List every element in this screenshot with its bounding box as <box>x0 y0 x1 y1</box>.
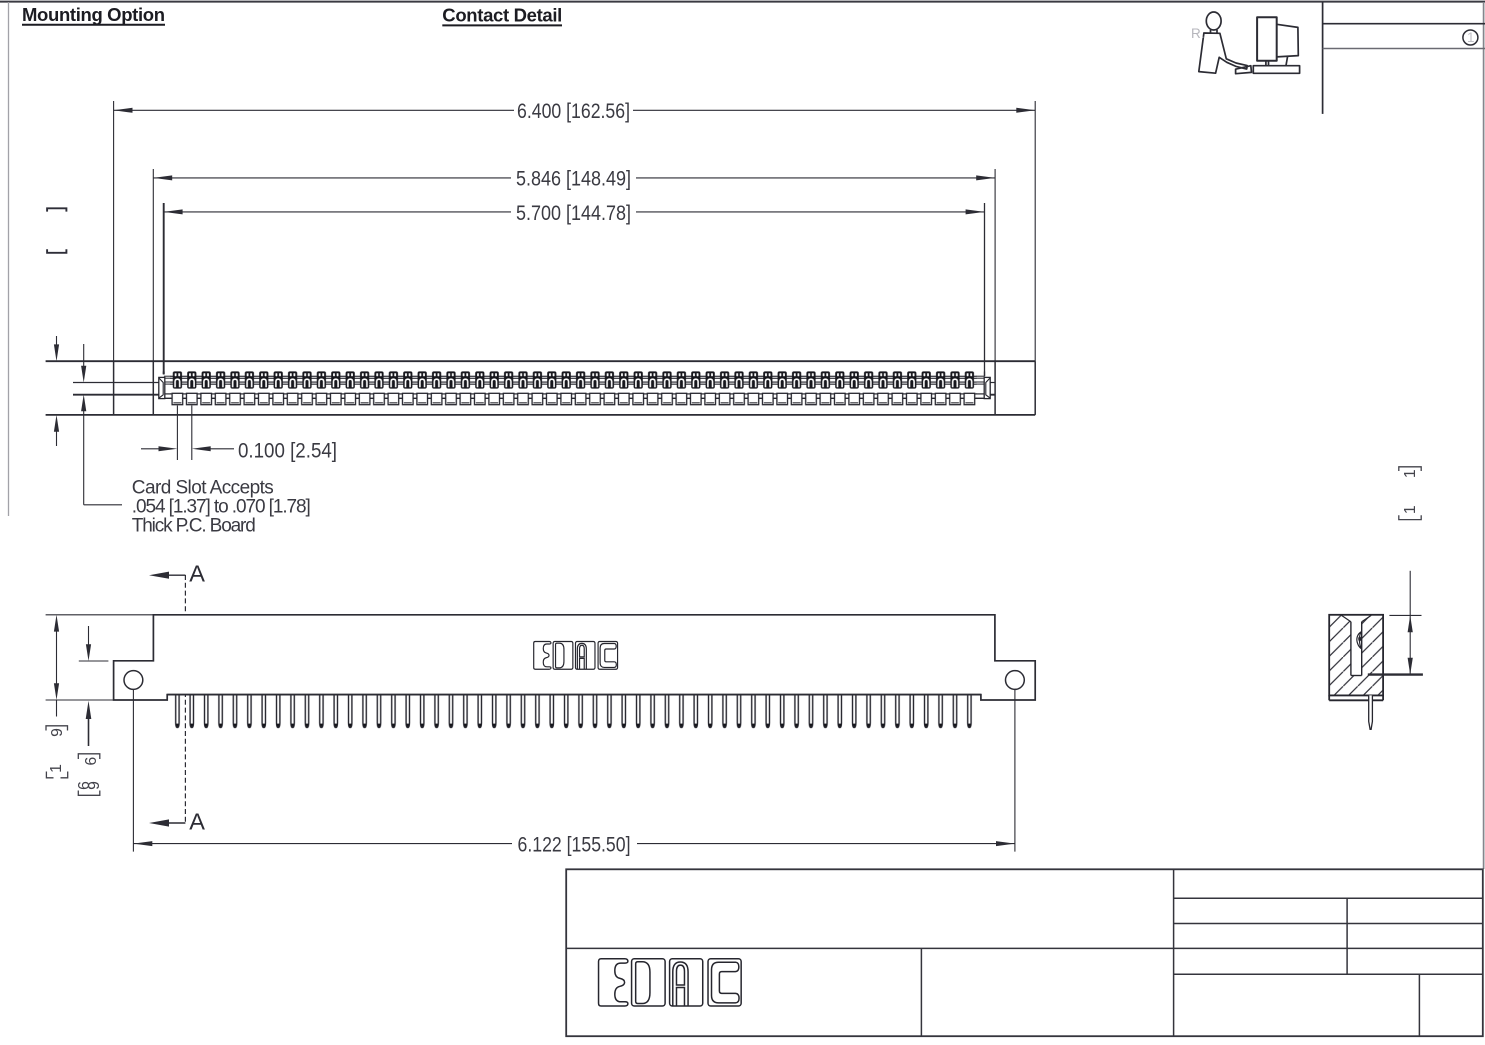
svg-text:Card Slot Accepts: Card Slot Accepts <box>132 478 274 499</box>
svg-text:9: 9 <box>49 728 66 737</box>
svg-text:6: 6 <box>83 757 100 766</box>
svg-text:0.100 [2.54]: 0.100 [2.54] <box>238 440 337 463</box>
svg-text:6.400 [162.56]: 6.400 [162.56] <box>517 100 630 123</box>
svg-text:Contact Detail: Contact Detail <box>442 4 562 25</box>
svg-text:1: 1 <box>48 764 65 773</box>
svg-text:A: A <box>189 561 205 587</box>
svg-text:Thick P.C. Board: Thick P.C. Board <box>132 515 256 536</box>
svg-text:A: A <box>189 809 205 835</box>
svg-text:1: 1 <box>1467 30 1475 45</box>
svg-text:9: 9 <box>86 781 103 790</box>
svg-text:R.: R. <box>1191 26 1205 41</box>
svg-text:1: 1 <box>1402 469 1419 478</box>
svg-text:5.700 [144.78]: 5.700 [144.78] <box>516 202 631 225</box>
svg-text:Mounting Option: Mounting Option <box>22 4 165 25</box>
svg-text:6.122 [155.50]: 6.122 [155.50] <box>518 833 631 856</box>
svg-text:5.846 [148.49]: 5.846 [148.49] <box>516 168 631 191</box>
svg-text:1: 1 <box>1402 505 1419 514</box>
